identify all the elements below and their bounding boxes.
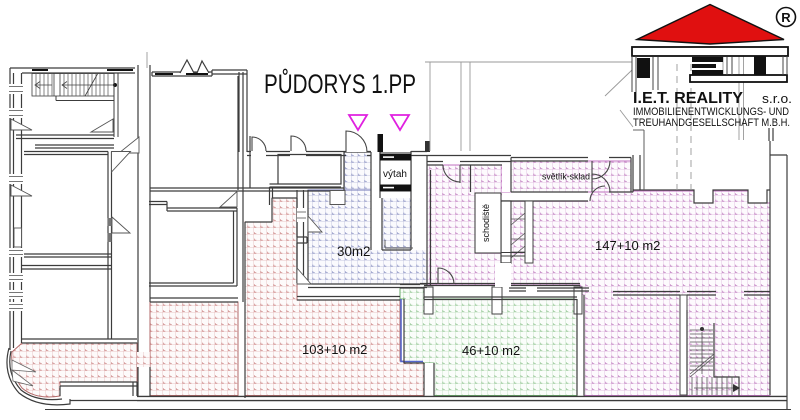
svg-text:I.E.T. REALITY: I.E.T. REALITY <box>633 90 743 107</box>
svg-text:PŮDORYS 1.PP: PŮDORYS 1.PP <box>264 67 416 99</box>
svg-text:103+10 m2: 103+10 m2 <box>302 342 367 357</box>
svg-text:TREUHANDGESELLSCHAFT M.B.H.: TREUHANDGESELLSCHAFT M.B.H. <box>633 117 790 129</box>
svg-text:světlík-sklad: světlík-sklad <box>542 172 590 182</box>
svg-text:R: R <box>781 10 791 25</box>
svg-text:46+10 m2: 46+10 m2 <box>462 343 520 358</box>
svg-text:výtah: výtah <box>383 169 407 180</box>
svg-text:schodiště: schodiště <box>481 204 491 242</box>
svg-text:147+10 m2: 147+10 m2 <box>595 238 660 253</box>
svg-text:30m2: 30m2 <box>337 244 371 259</box>
svg-text:s.r.o.: s.r.o. <box>762 92 792 106</box>
